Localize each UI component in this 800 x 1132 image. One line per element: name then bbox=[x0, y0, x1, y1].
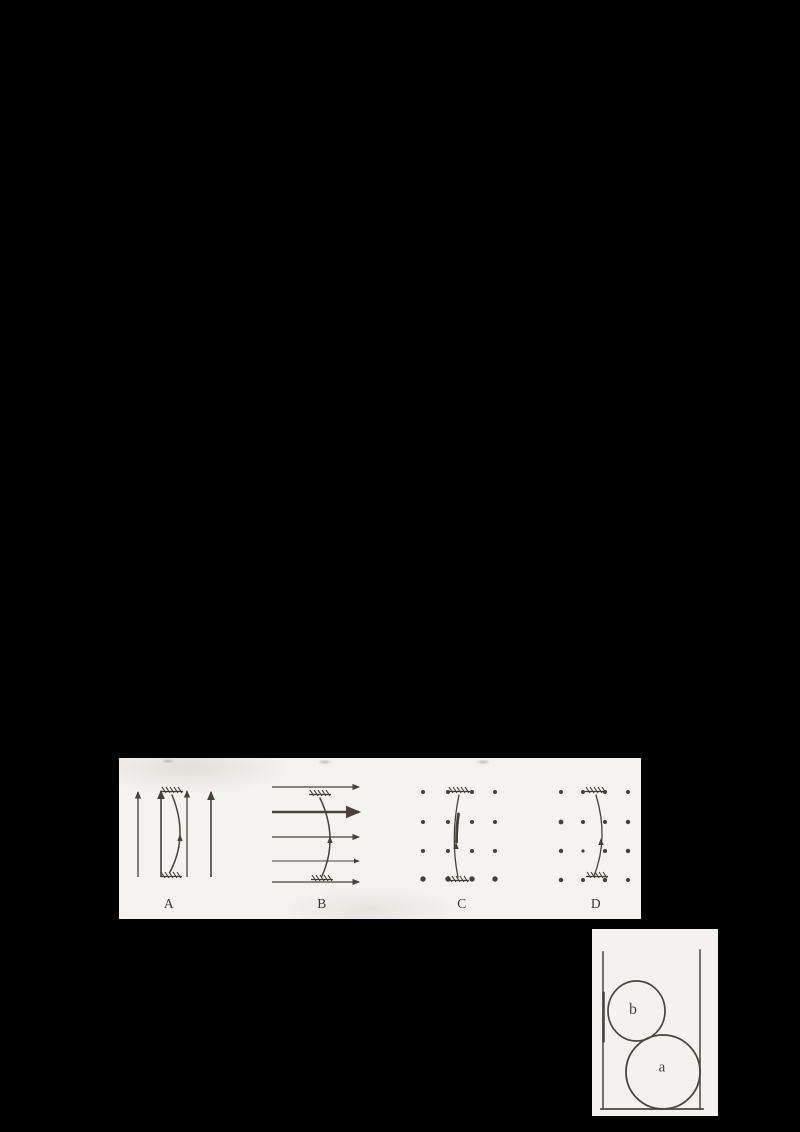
panel-d-label: D bbox=[591, 896, 601, 912]
panel-d-field-dots-grid bbox=[559, 790, 631, 882]
options-diagram bbox=[119, 758, 641, 919]
panel-d-current-arrow-icon bbox=[598, 838, 603, 845]
container-figure: b a bbox=[592, 929, 718, 1116]
panel-d-top-anchor-icon bbox=[585, 787, 607, 793]
panel-b-top-anchor-icon bbox=[309, 790, 331, 796]
panel-d-wire bbox=[594, 795, 602, 876]
panel-a-current-arrow-icon bbox=[177, 834, 182, 841]
panel-c-field-dots-grid bbox=[420, 790, 497, 882]
panel-b-field-right-arrows bbox=[272, 787, 359, 882]
panel-a-bottom-anchor-icon bbox=[160, 872, 182, 878]
page-background: A B C D b a bbox=[0, 0, 800, 1132]
options-figure: A B C D bbox=[119, 758, 641, 919]
panel-d-bottom-anchor-icon bbox=[586, 872, 608, 878]
ball-a-label: a bbox=[659, 1060, 666, 1077]
ball-b-label: b bbox=[629, 1001, 637, 1019]
panel-c-wire-thick-segment bbox=[457, 814, 459, 842]
panel-b-label: B bbox=[317, 896, 327, 912]
panel-a-top-anchor-icon bbox=[161, 787, 183, 793]
container-diagram bbox=[592, 929, 718, 1116]
panel-a-wire bbox=[170, 795, 180, 872]
panel-c-label: C bbox=[457, 896, 467, 912]
panel-a-label: A bbox=[164, 896, 174, 912]
panel-c-top-anchor-icon bbox=[448, 787, 470, 793]
